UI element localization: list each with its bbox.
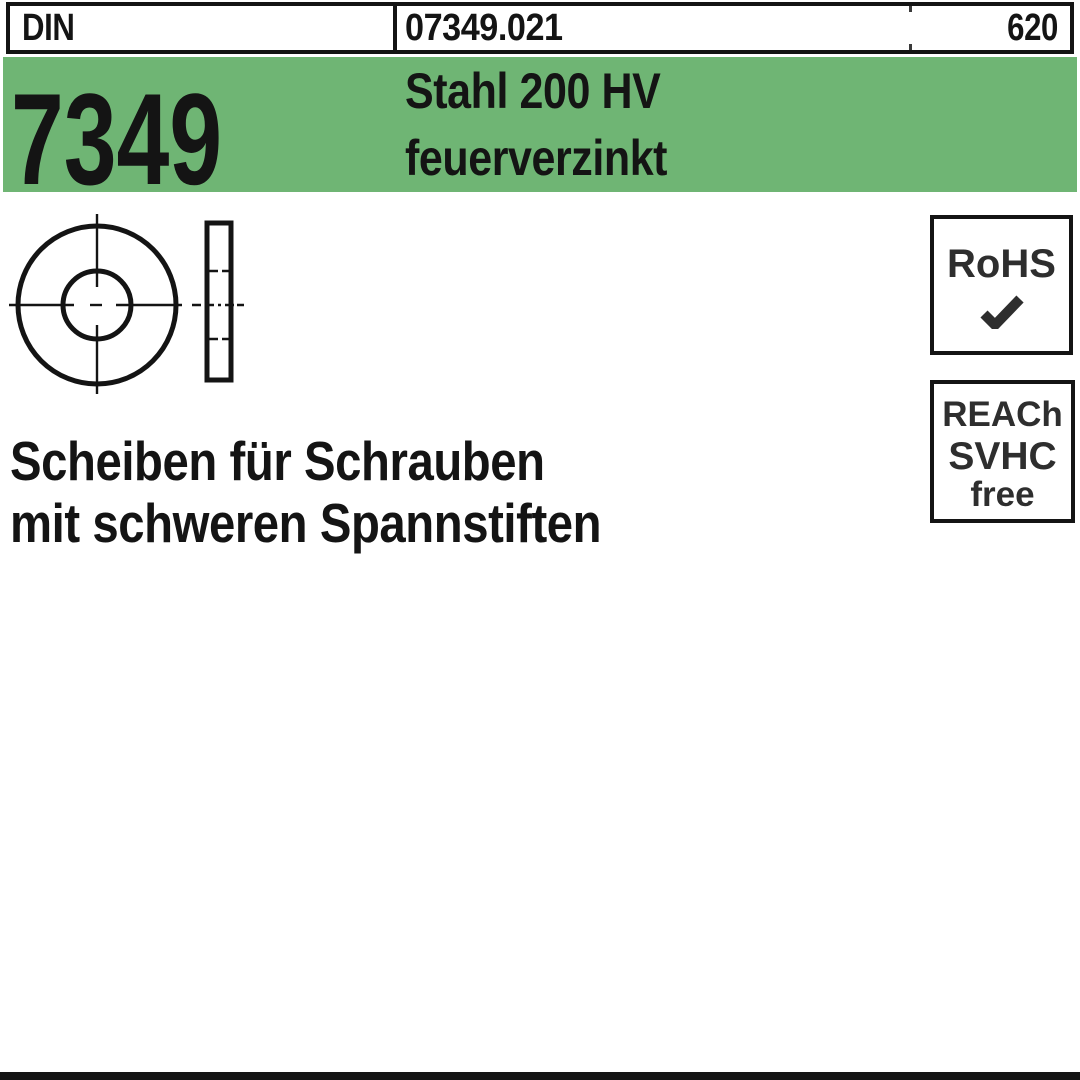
description-line1: Scheiben für Schrauben (10, 430, 601, 492)
product-description: Scheiben für Schrauben mit schweren Span… (10, 430, 697, 554)
washer-front-view (9, 214, 182, 394)
reach-line3: free (934, 478, 1071, 512)
checkmark-icon (979, 295, 1025, 329)
washer-technical-drawing (0, 195, 250, 405)
reach-line1: REACh (934, 394, 1071, 436)
rohs-badge: RoHS (930, 215, 1073, 355)
bottom-bar (0, 1072, 1080, 1080)
din-number: 7349 (11, 74, 222, 204)
coating-spec: feuerverzinkt (405, 133, 667, 183)
cell-divider-tick-top (909, 6, 912, 12)
article-number: 07349.021 (405, 9, 563, 47)
reach-line2: SVHC (934, 436, 1071, 478)
header-cell-article: 07349.021 620 (397, 6, 1070, 50)
product-card: DIN 07349.021 620 7349 Stahl 200 HV feue… (0, 0, 1080, 1080)
description-line2: mit schweren Spannstiften (10, 492, 601, 554)
reach-badge: REACh SVHC free (930, 380, 1075, 523)
header-bar: DIN 07349.021 620 (6, 2, 1074, 54)
header-cell-din: DIN (10, 6, 397, 50)
din-banner: 7349 Stahl 200 HV feuerverzinkt (3, 57, 1077, 192)
cell-divider-tick-bottom (909, 44, 912, 50)
washer-side-view (192, 223, 244, 380)
catalog-page-number: 620 (1007, 9, 1058, 47)
material-spec: Stahl 200 HV (405, 66, 660, 116)
din-label: DIN (22, 9, 74, 47)
rohs-label: RoHS (934, 244, 1069, 284)
